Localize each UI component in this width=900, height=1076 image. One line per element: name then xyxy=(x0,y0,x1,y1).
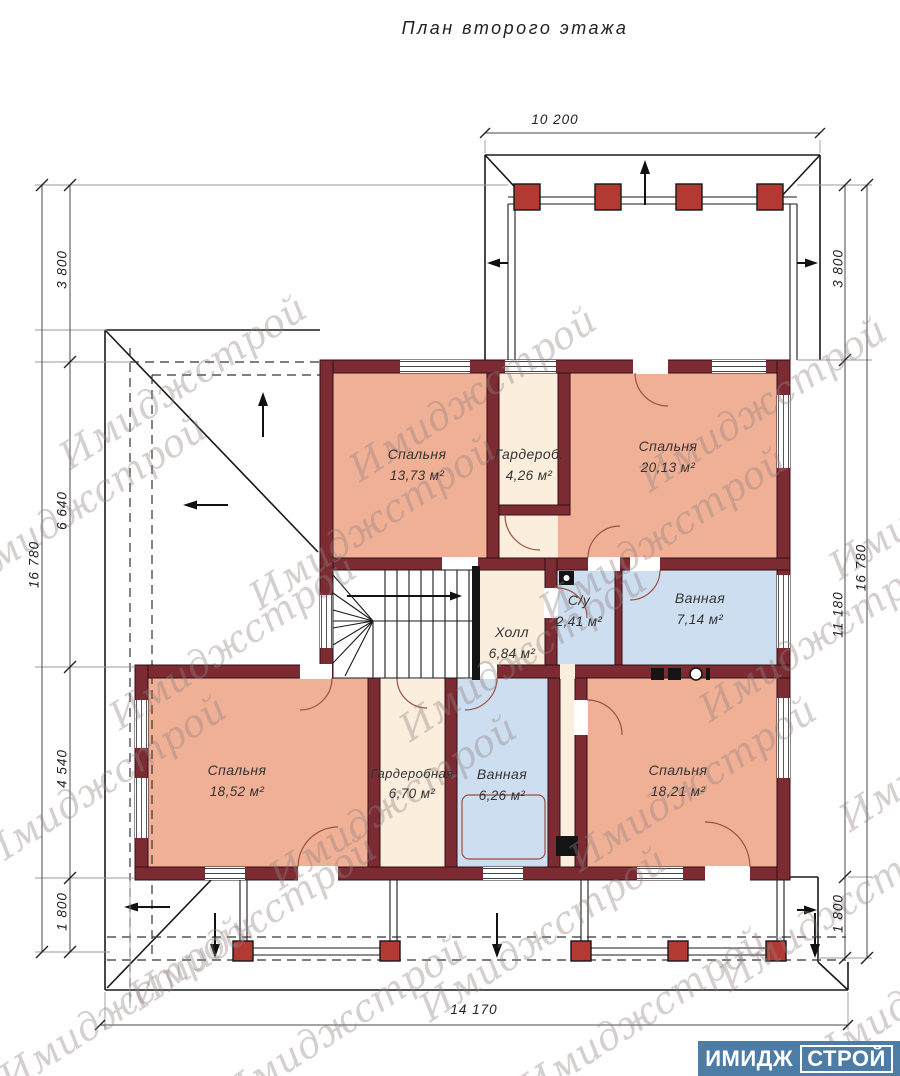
dim-left-outer: 16 780 xyxy=(27,525,42,605)
room-label-hall: Холл 6,84 м² xyxy=(462,622,562,665)
page-title: План второго этажа xyxy=(315,18,715,39)
company-logo: ИМИДЖ СТРОЙ xyxy=(698,1041,900,1076)
floor-plan-drawing xyxy=(0,0,900,1076)
room-label-bathroom-1: Ванная 7,14 м² xyxy=(630,588,770,631)
room-label-bedroom-3: Спальня 18,52 м² xyxy=(157,760,317,803)
porch-columns xyxy=(233,941,786,961)
room-label-bedroom-1: Спальня 13,73 м² xyxy=(337,444,497,487)
toilet-icon xyxy=(559,571,574,585)
staircase xyxy=(333,566,480,680)
dim-top: 10 200 xyxy=(475,112,635,127)
dim-left-3: 4 540 xyxy=(55,729,70,809)
balcony xyxy=(485,155,820,360)
dim-right-3: 1 800 xyxy=(831,874,846,954)
room-label-bedroom-2: Спальня 20,13 м² xyxy=(588,436,748,479)
logo-text-imidzh: ИМИДЖ xyxy=(705,1046,793,1072)
room-label-wardrobe: Гардероб. 4,26 м² xyxy=(479,444,579,487)
dim-left-1: 3 800 xyxy=(55,230,70,310)
dim-right-2: 11 180 xyxy=(831,575,846,655)
dim-right-outer: 16 780 xyxy=(854,528,869,608)
room-label-bathroom-2: Ванная 6,26 м² xyxy=(452,764,552,807)
dim-bottom: 14 170 xyxy=(394,1002,554,1017)
room-label-bedroom-4: Спальня 18,21 м² xyxy=(598,760,758,803)
dim-left-4: 1 800 xyxy=(55,872,70,952)
dim-right-1: 3 800 xyxy=(831,229,846,309)
dim-left-2: 6 640 xyxy=(55,471,70,551)
washer-icon xyxy=(651,668,710,680)
logo-text-stroy: СТРОЙ xyxy=(800,1045,893,1073)
floor-plan-page: План второго этажа xyxy=(0,0,900,1076)
porches xyxy=(233,880,786,961)
shaft-icon xyxy=(556,836,578,856)
